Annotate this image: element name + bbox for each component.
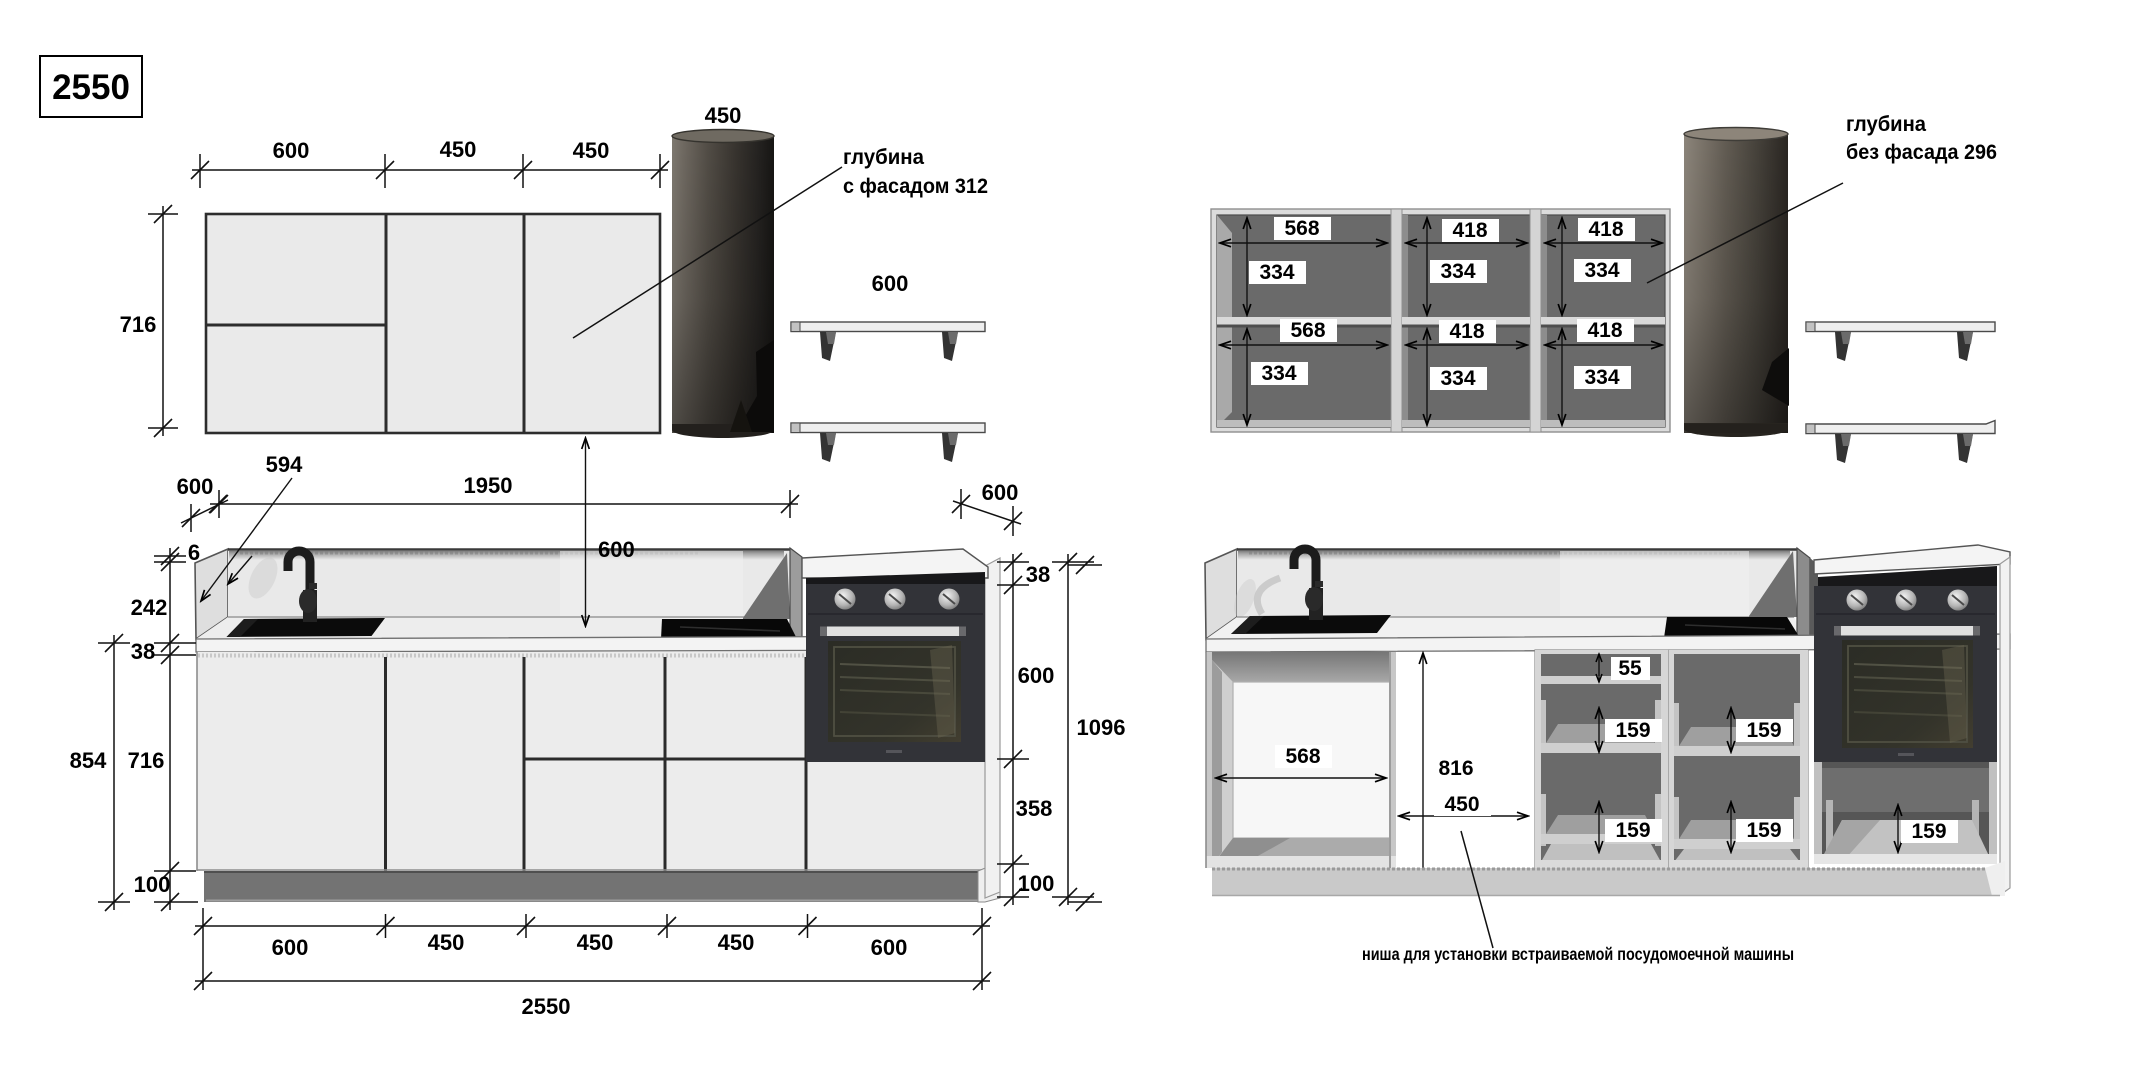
svg-text:594: 594 <box>266 452 303 477</box>
svg-text:450: 450 <box>705 103 742 128</box>
svg-text:100: 100 <box>134 872 171 897</box>
svg-text:600: 600 <box>598 537 635 562</box>
svg-text:с фасадом 312: с фасадом 312 <box>843 175 988 198</box>
svg-text:6: 6 <box>188 540 200 565</box>
svg-text:854: 854 <box>70 748 107 773</box>
svg-text:159: 159 <box>1615 719 1650 742</box>
svg-text:159: 159 <box>1911 820 1946 843</box>
svg-text:418: 418 <box>1449 320 1484 343</box>
svg-text:334: 334 <box>1261 362 1296 385</box>
svg-text:без фасада 296: без фасада 296 <box>1846 141 1997 164</box>
svg-text:568: 568 <box>1290 319 1325 342</box>
svg-text:334: 334 <box>1259 261 1294 284</box>
svg-text:450: 450 <box>1444 793 1479 816</box>
svg-text:600: 600 <box>272 935 309 960</box>
svg-text:1096: 1096 <box>1077 715 1126 740</box>
svg-text:334: 334 <box>1584 259 1619 282</box>
svg-text:600: 600 <box>273 138 310 163</box>
svg-text:334: 334 <box>1440 367 1475 390</box>
svg-text:2550: 2550 <box>52 68 130 107</box>
svg-text:716: 716 <box>120 312 157 337</box>
svg-text:334: 334 <box>1440 260 1475 283</box>
svg-text:глубина: глубина <box>843 146 924 169</box>
svg-text:242: 242 <box>131 595 168 620</box>
svg-text:159: 159 <box>1746 819 1781 842</box>
svg-text:600: 600 <box>1018 663 1055 688</box>
svg-text:450: 450 <box>573 138 610 163</box>
svg-text:334: 334 <box>1584 366 1619 389</box>
svg-text:600: 600 <box>871 935 908 960</box>
svg-text:600: 600 <box>177 474 214 499</box>
svg-text:450: 450 <box>428 930 465 955</box>
svg-text:1950: 1950 <box>464 473 513 498</box>
svg-text:816: 816 <box>1438 757 1473 780</box>
svg-text:600: 600 <box>872 271 909 296</box>
svg-text:38: 38 <box>1026 562 1050 587</box>
svg-text:450: 450 <box>718 930 755 955</box>
svg-text:418: 418 <box>1587 319 1622 342</box>
svg-text:568: 568 <box>1285 745 1320 768</box>
svg-text:418: 418 <box>1452 219 1487 242</box>
svg-text:600: 600 <box>982 480 1019 505</box>
svg-text:418: 418 <box>1588 218 1623 241</box>
svg-text:55: 55 <box>1618 657 1642 680</box>
svg-text:568: 568 <box>1284 217 1319 240</box>
svg-text:глубина: глубина <box>1846 113 1926 136</box>
svg-text:716: 716 <box>128 748 165 773</box>
svg-text:ниша для установки встраиваемо: ниша для установки встраиваемой посудомо… <box>1362 944 1794 964</box>
svg-text:450: 450 <box>440 137 477 162</box>
svg-text:100: 100 <box>1018 871 1055 896</box>
svg-text:358: 358 <box>1016 796 1053 821</box>
svg-text:38: 38 <box>131 639 155 664</box>
svg-text:450: 450 <box>577 930 614 955</box>
svg-text:159: 159 <box>1746 719 1781 742</box>
svg-text:2550: 2550 <box>522 994 571 1019</box>
svg-text:159: 159 <box>1615 819 1650 842</box>
